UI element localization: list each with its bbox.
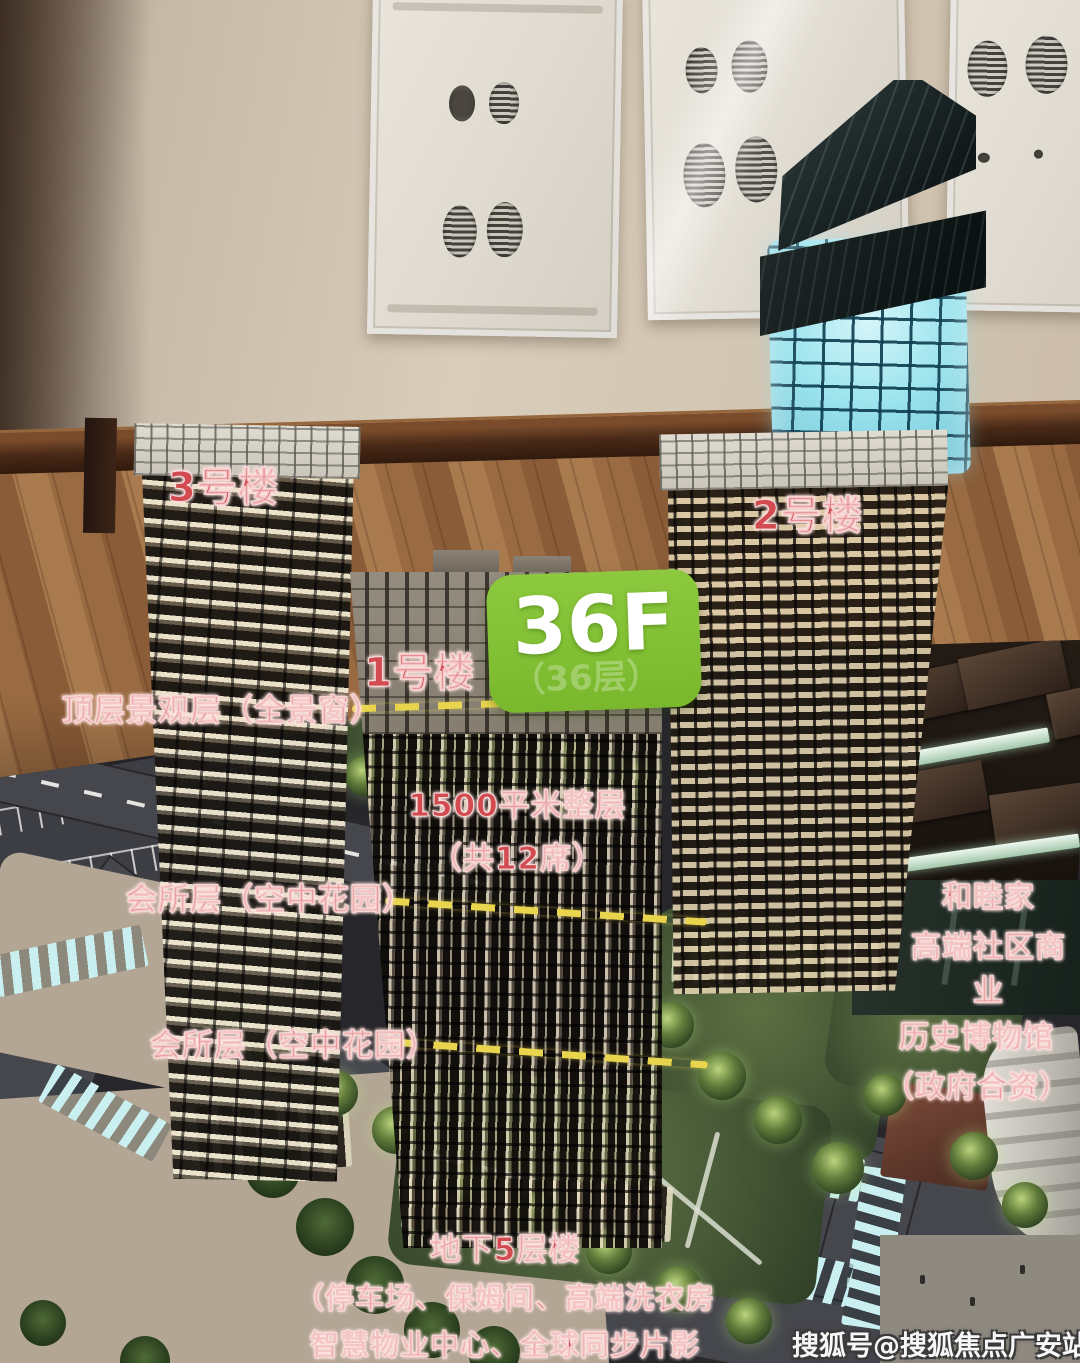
frame-slat — [393, 2, 603, 14]
label-club-floor-upper: 会所层（空中花园） — [126, 874, 414, 919]
tree — [698, 1052, 746, 1100]
label-whole-floor-line2: （共12席） — [405, 833, 630, 878]
label-museum-line2: （政府合资） — [884, 1062, 1069, 1106]
tower-building-3 — [125, 423, 356, 1182]
label-commercial-line2: 高端社区商业 — [896, 922, 1080, 1010]
floor-count-ghost-text: （36层） — [510, 647, 692, 702]
model-figure — [970, 1297, 975, 1306]
wall-art-frame — [367, 0, 623, 338]
tree — [1002, 1182, 1048, 1228]
wall-pillar-shadow — [83, 418, 117, 534]
label-basement: 地下5层楼 （停车场、保姆间、高端洗衣房 智慧物业中心、全球同步片影院） — [290, 1224, 720, 1363]
model-figure — [920, 1275, 925, 1284]
label-basement-line2: （停车场、保姆间、高端洗衣房 — [290, 1275, 720, 1317]
frame-slat — [387, 304, 597, 316]
label-club-floor-lower: 会所层（空中花园） — [150, 1020, 438, 1065]
artwork-oval — [449, 85, 476, 121]
label-whole-floor-line1: 1500平米整层 — [405, 780, 630, 825]
label-building-3: 3号楼 — [168, 455, 279, 513]
artwork-oval — [486, 202, 523, 258]
label-top-view-floor: 顶层景观层（全景窗） — [62, 685, 382, 730]
tree — [754, 1096, 802, 1144]
tower2-roof-grid — [659, 430, 948, 491]
label-commercial-line1: 和睦家 — [896, 872, 1080, 916]
artwork-oval — [1025, 35, 1068, 94]
model-figure — [1020, 1265, 1025, 1274]
artwork-oval — [489, 82, 520, 125]
label-basement-line1: 地下5层楼 — [290, 1224, 720, 1269]
tower3-facade — [125, 475, 355, 1182]
floor-count-badge: 36F （36层） — [486, 568, 703, 713]
artwork-dot — [1034, 150, 1043, 159]
showroom-model-photo: 3号楼 2号楼 1号楼 36F （36层） 顶层景观层（全景窗） 1500平米整… — [0, 0, 1080, 1363]
label-basement-line3: 智慧物业中心、全球同步片影院） — [290, 1322, 720, 1363]
label-building-2: 2号楼 — [752, 483, 863, 541]
palm-tree — [20, 1300, 66, 1346]
label-museum: 历史博物馆 （政府合资） — [884, 1012, 1069, 1106]
tree — [812, 1142, 864, 1194]
label-whole-floor: 1500平米整层 （共12席） — [405, 780, 630, 878]
artwork-oval — [442, 205, 477, 258]
watermark: 搜狐号@搜狐焦点广安站 — [792, 1324, 1080, 1363]
label-museum-line1: 历史博物馆 — [884, 1012, 1069, 1056]
label-commercial: 和睦家 高端社区商业 — [896, 872, 1080, 1010]
glass-tower — [760, 80, 990, 480]
tree — [950, 1132, 998, 1180]
tree — [726, 1298, 772, 1344]
